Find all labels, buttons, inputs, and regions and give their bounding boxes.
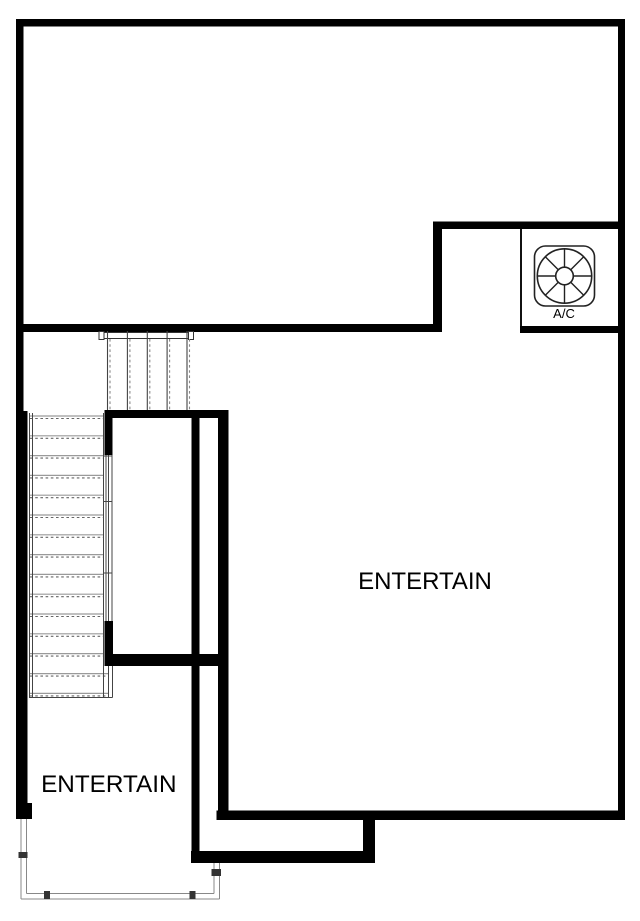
svg-text:ENTERTAIN: ENTERTAIN	[358, 568, 492, 595]
svg-text:ENTERTAIN: ENTERTAIN	[41, 771, 176, 798]
svg-text:A/C: A/C	[553, 306, 575, 321]
